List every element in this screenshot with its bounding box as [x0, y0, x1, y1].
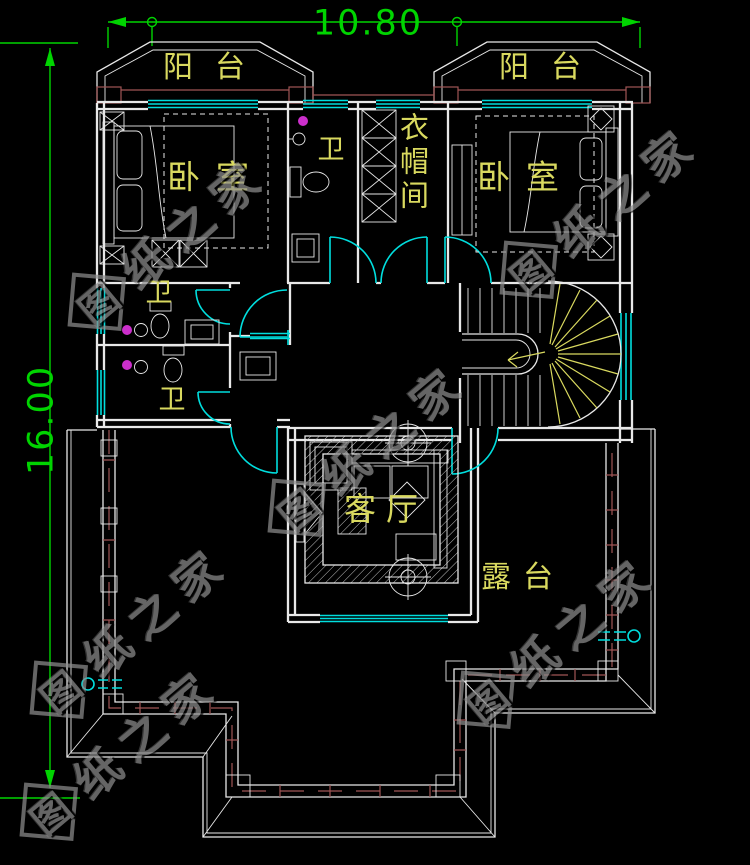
- door-cloakroom: [381, 237, 427, 283]
- spiral-stair-treads: [550, 284, 621, 424]
- label-cloakroom: 衣帽间: [398, 112, 427, 214]
- door-terrace: [231, 427, 277, 473]
- dimension-width-label: 10.80: [313, 7, 423, 42]
- stair-direction-arrow: [508, 352, 545, 367]
- hall-desk: [240, 352, 276, 380]
- door-bedroom-left: [240, 290, 287, 337]
- door-bath-upper: [196, 290, 230, 324]
- floor-plan-canvas: 10.80 16.00 阳台 阳台 卧室 卧室 卫 卫 卫 衣帽间 客厅 露台 …: [0, 0, 750, 865]
- watermark-diamond: 图: [268, 479, 327, 538]
- watermark-diamond: 图: [20, 783, 79, 842]
- watermark-diamond: 图: [68, 273, 127, 332]
- dimension-height-label: 16.00: [25, 365, 60, 475]
- label-bedroom-right: 卧室: [477, 161, 575, 194]
- watermark-diamond: 图: [457, 671, 516, 730]
- wardrobe-cloakroom: [362, 110, 396, 222]
- parapet-accent-line: [121, 90, 626, 95]
- toilet-bath-lower: [135, 346, 185, 382]
- label-balcony-right: 阳台: [499, 53, 603, 83]
- label-balcony-left: 阳台: [163, 53, 267, 83]
- wardrobe-bedroom-right: [452, 145, 472, 235]
- door-bedroom-right: [445, 237, 491, 283]
- door-bath-top: [330, 237, 376, 283]
- label-bath-top: 卫: [318, 137, 345, 164]
- watermark-diamond: 图: [30, 661, 89, 720]
- staircase: [462, 281, 621, 427]
- watermark-diamond: 图: [500, 241, 559, 300]
- label-bath-lower: 卫: [159, 387, 186, 414]
- ceiling-fan-bottom: [385, 554, 431, 600]
- label-terrace: 露台: [481, 563, 565, 593]
